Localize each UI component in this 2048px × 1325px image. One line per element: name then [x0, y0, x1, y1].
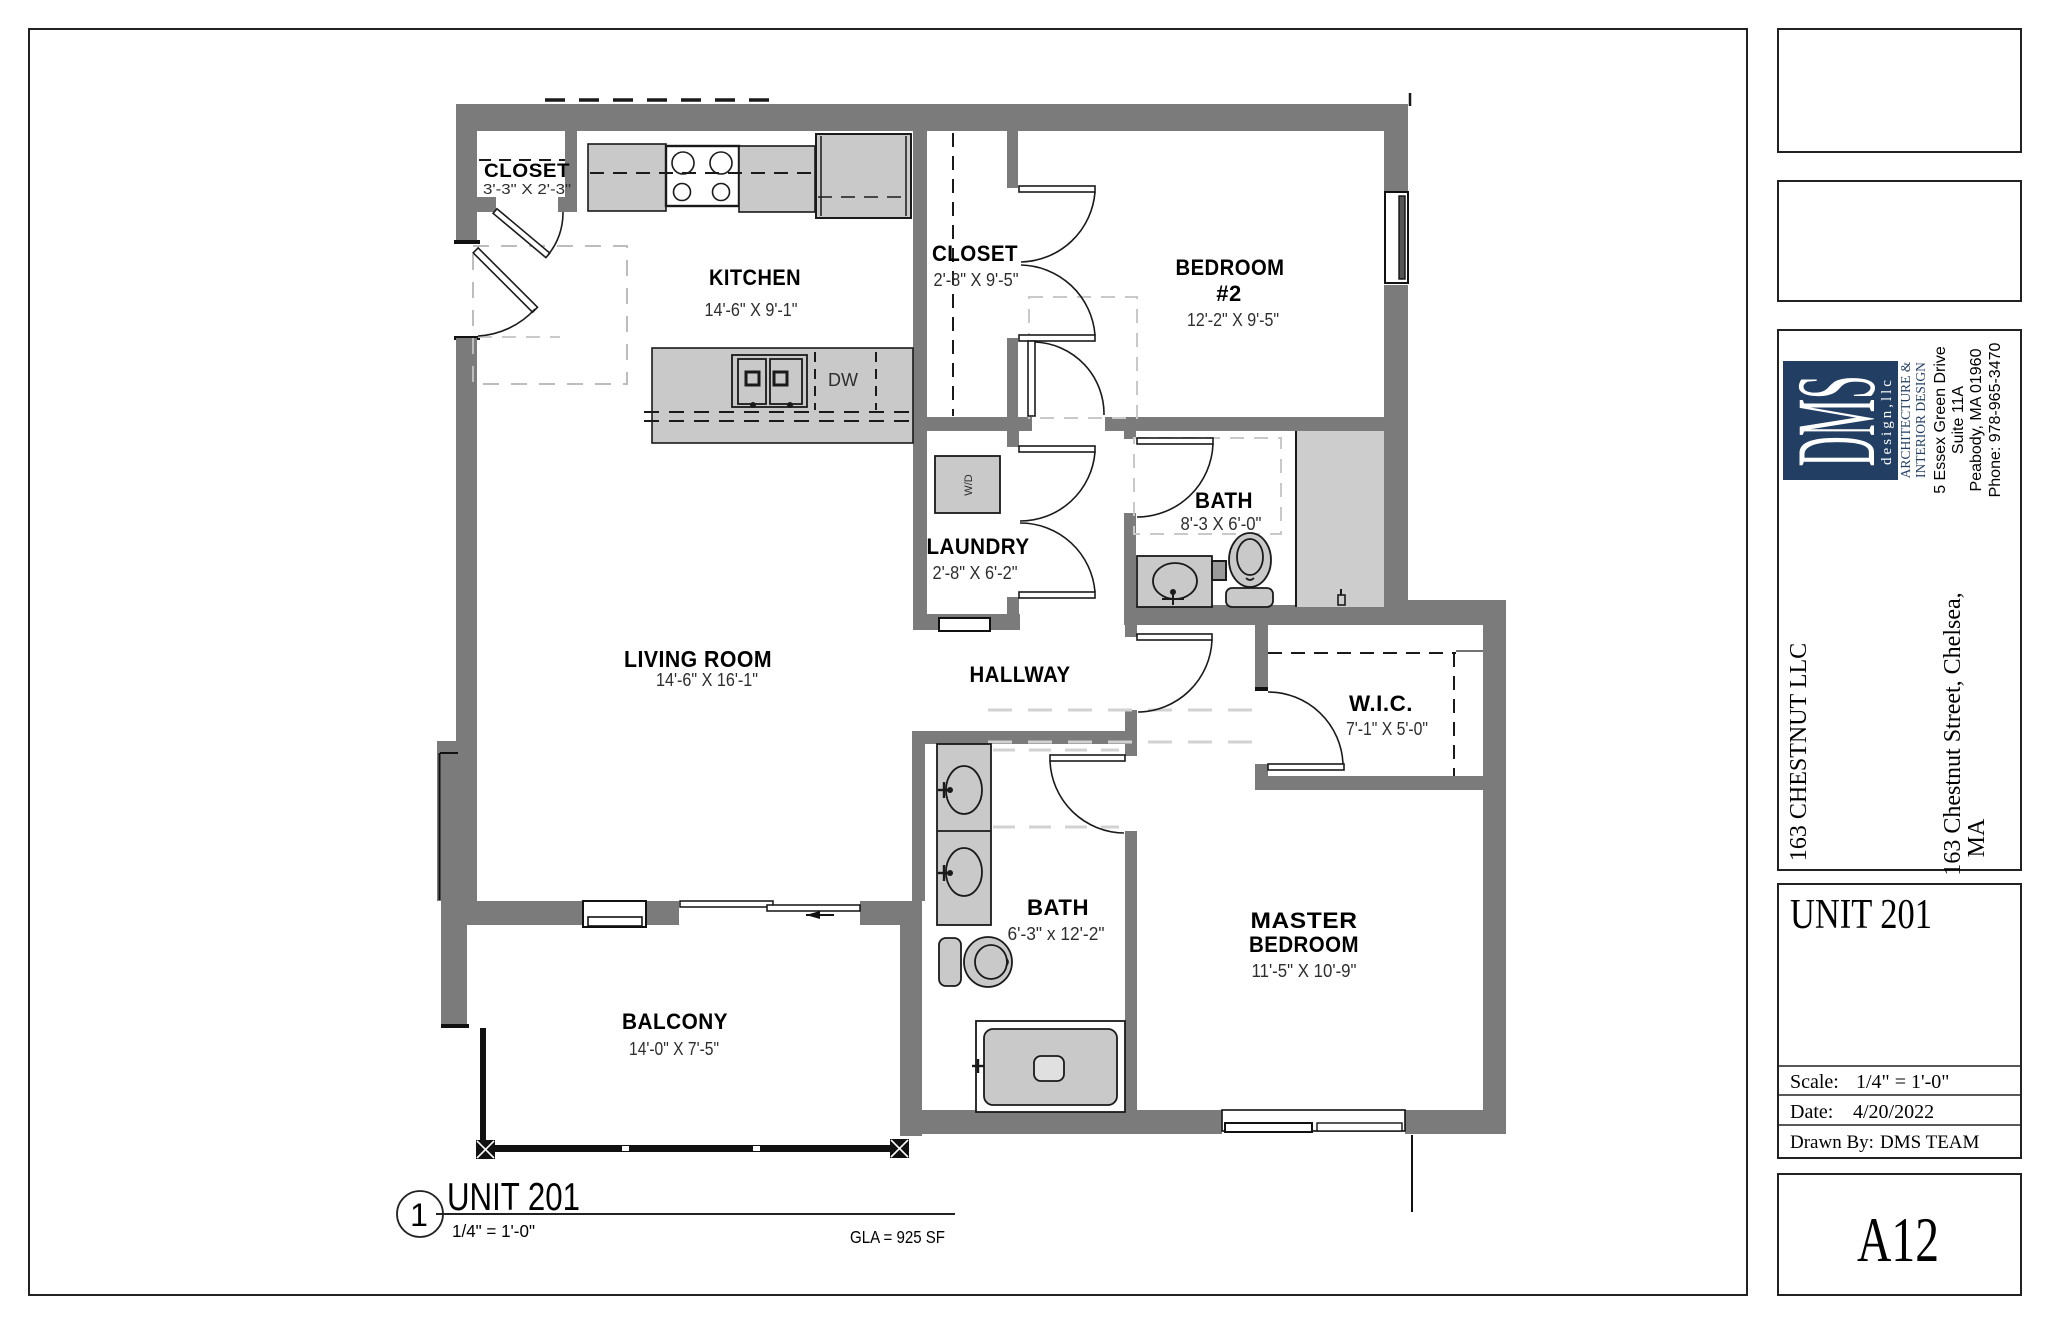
svg-text:DMS TEAM: DMS TEAM	[1880, 1132, 1980, 1153]
svg-text:Phone: 978-965-3470: Phone: 978-965-3470	[1987, 343, 2004, 498]
svg-text:#2: #2	[1216, 281, 1241, 306]
svg-text:Peabody, MA 01960: Peabody, MA 01960	[1968, 348, 1985, 491]
svg-text:CLOSET: CLOSET	[932, 241, 1018, 266]
svg-text:MASTER: MASTER	[1251, 908, 1358, 933]
svg-text:163 CHESTNUT LLC: 163 CHESTNUT LLC	[1786, 643, 1812, 861]
svg-text:BEDROOM: BEDROOM	[1249, 932, 1359, 957]
svg-text:BALCONY: BALCONY	[622, 1009, 728, 1034]
svg-text:1/4" = 1'-0": 1/4" = 1'-0"	[1856, 1071, 1949, 1093]
svg-text:14'-6" X 9'-1": 14'-6" X 9'-1"	[705, 300, 798, 320]
svg-text:3'-3" X 2'-3": 3'-3" X 2'-3"	[483, 181, 571, 198]
svg-text:HALLWAY: HALLWAY	[970, 662, 1071, 687]
svg-text:Drawn By:: Drawn By:	[1790, 1132, 1874, 1153]
svg-text:8'-3 X 6'-0": 8'-3 X 6'-0"	[1181, 514, 1262, 534]
svg-text:design,llc: design,llc	[1879, 377, 1895, 465]
svg-text:163 Chestnut Street, Chelsea,: 163 Chestnut Street, Chelsea,	[1940, 592, 1966, 875]
svg-text:LAUNDRY: LAUNDRY	[927, 534, 1030, 559]
svg-text:14'-6" X 16'-1": 14'-6" X 16'-1"	[656, 670, 758, 690]
svg-text:A12: A12	[1857, 1204, 1939, 1275]
svg-text:11'-5" X 10'-9": 11'-5" X 10'-9"	[1252, 961, 1357, 981]
svg-text:UNIT 201: UNIT 201	[1790, 892, 1932, 938]
svg-text:4/20/2022: 4/20/2022	[1853, 1101, 1934, 1123]
svg-text:12'-2" X 9'-5": 12'-2" X 9'-5"	[1187, 310, 1279, 330]
svg-text:CLOSET: CLOSET	[484, 161, 570, 182]
svg-text:W/D: W/D	[963, 474, 975, 495]
svg-text:1: 1	[410, 1197, 428, 1233]
svg-text:LIVING ROOM: LIVING ROOM	[624, 646, 772, 672]
svg-text:INTERIOR DESIGN: INTERIOR DESIGN	[1913, 362, 1928, 478]
svg-text:6'-3" x 12'-2": 6'-3" x 12'-2"	[1008, 924, 1105, 944]
svg-text:2'-8" X 6'-2": 2'-8" X 6'-2"	[933, 563, 1018, 583]
svg-text:MA: MA	[1964, 818, 1990, 857]
svg-text:DW: DW	[828, 370, 858, 390]
svg-text:1/4" = 1'-0": 1/4" = 1'-0"	[452, 1221, 535, 1241]
svg-text:ARCHITECTURE &: ARCHITECTURE &	[1898, 361, 1913, 478]
svg-text:KITCHEN: KITCHEN	[709, 265, 801, 290]
svg-text:5 Essex Green Drive: 5 Essex Green Drive	[1932, 346, 1949, 494]
svg-text:Suite 11A: Suite 11A	[1950, 386, 1967, 455]
svg-text:BATH: BATH	[1195, 488, 1253, 513]
svg-text:BATH: BATH	[1027, 895, 1089, 920]
svg-text:14'-0" X 7'-5": 14'-0" X 7'-5"	[629, 1039, 719, 1059]
svg-text:GLA = 925 SF: GLA = 925 SF	[850, 1227, 945, 1247]
svg-text:UNIT 201: UNIT 201	[447, 1176, 580, 1219]
svg-text:Date:: Date:	[1790, 1101, 1833, 1123]
svg-text:Scale:: Scale:	[1790, 1071, 1839, 1093]
svg-text:7'-1" X 5'-0": 7'-1" X 5'-0"	[1346, 719, 1428, 739]
svg-text:2'-8" X 9'-5": 2'-8" X 9'-5"	[934, 270, 1019, 290]
svg-text:W.I.C.: W.I.C.	[1349, 691, 1413, 716]
svg-text:BEDROOM: BEDROOM	[1176, 255, 1285, 280]
